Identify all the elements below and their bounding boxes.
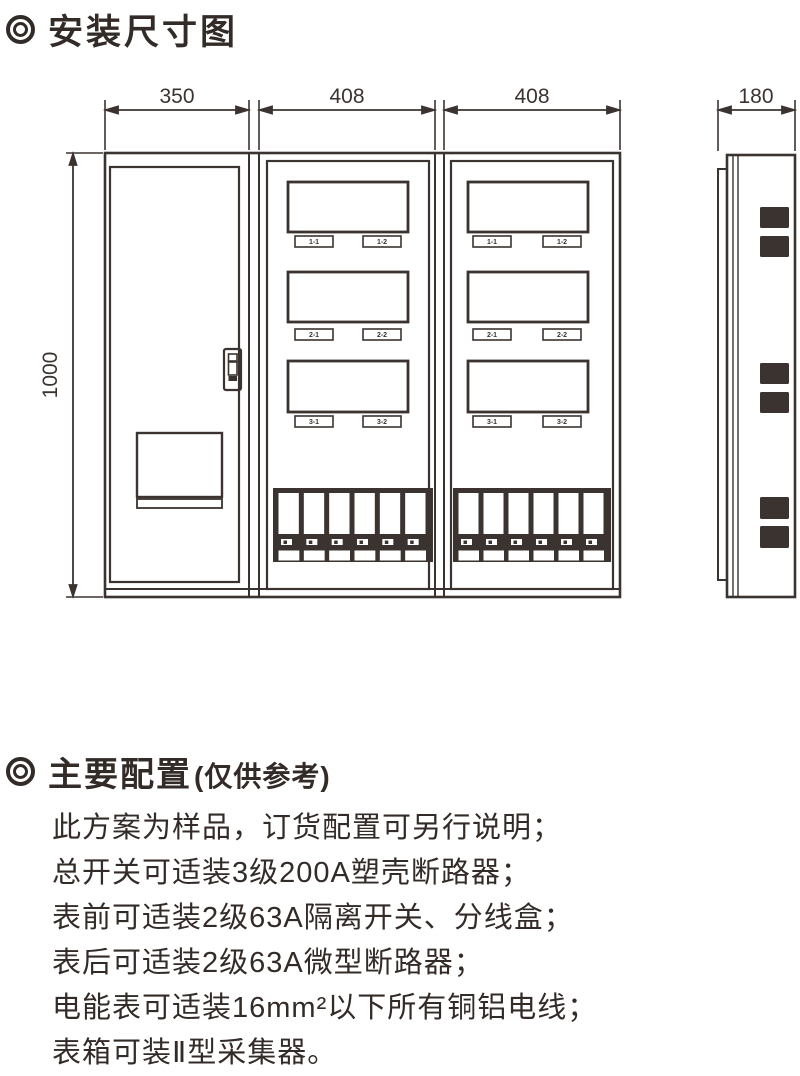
breaker-terminal xyxy=(459,551,480,561)
dim-front-right-width: 408 xyxy=(514,85,549,108)
breaker-terminal xyxy=(405,551,426,561)
breaker-terminal xyxy=(509,551,530,561)
dim-front-middle-width: 408 xyxy=(329,85,364,108)
breaker-toggle-mark xyxy=(334,541,338,545)
breaker-terminal xyxy=(329,551,350,561)
breaker-toggle-mark xyxy=(514,541,518,545)
breaker-module-body xyxy=(484,493,504,534)
breaker-toggle-mark xyxy=(539,541,543,545)
breaker-terminal xyxy=(355,551,376,561)
breaker-toggle-mark xyxy=(464,541,468,545)
breaker-terminal xyxy=(484,551,505,561)
meter-tag: 2-1 xyxy=(487,332,497,339)
config-note-line: 表箱可装Ⅱ型采集器。 xyxy=(52,1031,792,1076)
config-note-line: 总开关可适装3级200A塑壳断路器； xyxy=(52,851,792,896)
meter-tag: 2-2 xyxy=(377,332,387,339)
configuration-notes: 此方案为样品，订货配置可另行说明； 总开关可适装3级200A塑壳断路器； 表前可… xyxy=(52,806,792,1076)
breaker-module-body xyxy=(279,493,299,534)
config-note-line: 电能表可适装16mm²以下所有铜铝电线； xyxy=(52,986,792,1031)
left-door xyxy=(110,167,239,582)
breaker-terminal xyxy=(584,551,605,561)
breaker-toggle-mark xyxy=(564,541,568,545)
configuration-subtitle: (仅供参考) xyxy=(194,755,331,795)
breaker-terminal xyxy=(304,551,325,561)
config-note-line: 此方案为样品，订货配置可另行说明； xyxy=(52,806,792,851)
breaker-module-body xyxy=(509,493,529,534)
meter-window xyxy=(288,182,408,232)
breaker-terminal xyxy=(534,551,555,561)
breaker-toggle-mark xyxy=(385,541,389,545)
installation-dimension-diagram: 350 408 408 180 1000 xyxy=(0,0,800,660)
side-door-edge xyxy=(718,169,727,580)
meter-tag: 1-2 xyxy=(377,239,387,246)
breaker-module-body xyxy=(584,493,604,534)
breaker-toggle-mark xyxy=(284,541,288,545)
breaker-toggle-mark xyxy=(410,541,414,545)
double-circle-bullet-icon xyxy=(6,757,35,786)
breaker-module-body xyxy=(459,493,479,534)
breaker-toggle-mark xyxy=(489,541,493,545)
meter-tag: 2-2 xyxy=(557,332,567,339)
breaker-module-body xyxy=(405,493,425,534)
side-view xyxy=(718,155,795,597)
dim-front-left-width: 350 xyxy=(159,85,194,108)
meter-window xyxy=(468,182,588,232)
breaker-module-body xyxy=(304,493,324,534)
meter-window xyxy=(468,361,588,412)
meter-tag: 1-1 xyxy=(487,239,497,246)
meter-tag: 2-1 xyxy=(309,332,319,339)
breaker-module-body xyxy=(559,493,579,534)
breaker-toggle-mark xyxy=(360,541,364,545)
dim-side-width: 180 xyxy=(738,85,773,108)
meter-tag: 1-1 xyxy=(309,239,319,246)
meter-tag: 3-2 xyxy=(377,419,387,426)
breaker-toggle-mark xyxy=(589,541,593,545)
meter-window xyxy=(468,272,588,322)
section-configuration-header: 主要配置 (仅供参考) xyxy=(6,747,331,796)
configuration-title-group: 主要配置 (仅供参考) xyxy=(48,747,331,796)
meter-tag: 1-2 xyxy=(557,239,567,246)
breaker-terminal xyxy=(380,551,401,561)
door-window-sill xyxy=(137,499,222,508)
breaker-terminal xyxy=(559,551,580,561)
config-note-line: 表后可适装2级63A微型断路器； xyxy=(52,941,792,986)
breaker-toggle-mark xyxy=(309,541,313,545)
breaker-row-middle xyxy=(273,488,433,562)
meter-window xyxy=(288,272,408,322)
door-window xyxy=(137,433,222,497)
side-vent-louvers xyxy=(760,207,789,548)
breaker-terminal xyxy=(279,551,300,561)
breaker-module-body xyxy=(355,493,375,534)
breaker-module-body xyxy=(329,493,349,534)
meter-tag: 3-1 xyxy=(487,419,497,426)
breaker-module-body xyxy=(534,493,554,534)
meter-tag: 3-2 xyxy=(557,419,567,426)
breaker-row-right xyxy=(453,488,611,562)
config-note-line: 表前可适装2级63A隔离开关、分线盒； xyxy=(52,896,792,941)
configuration-title: 主要配置 xyxy=(48,747,192,796)
meter-tag-plates xyxy=(295,236,581,427)
meter-tag: 3-1 xyxy=(309,419,319,426)
dim-height: 1000 xyxy=(39,352,62,399)
breaker-module-body xyxy=(380,493,400,534)
meter-window xyxy=(288,361,408,412)
